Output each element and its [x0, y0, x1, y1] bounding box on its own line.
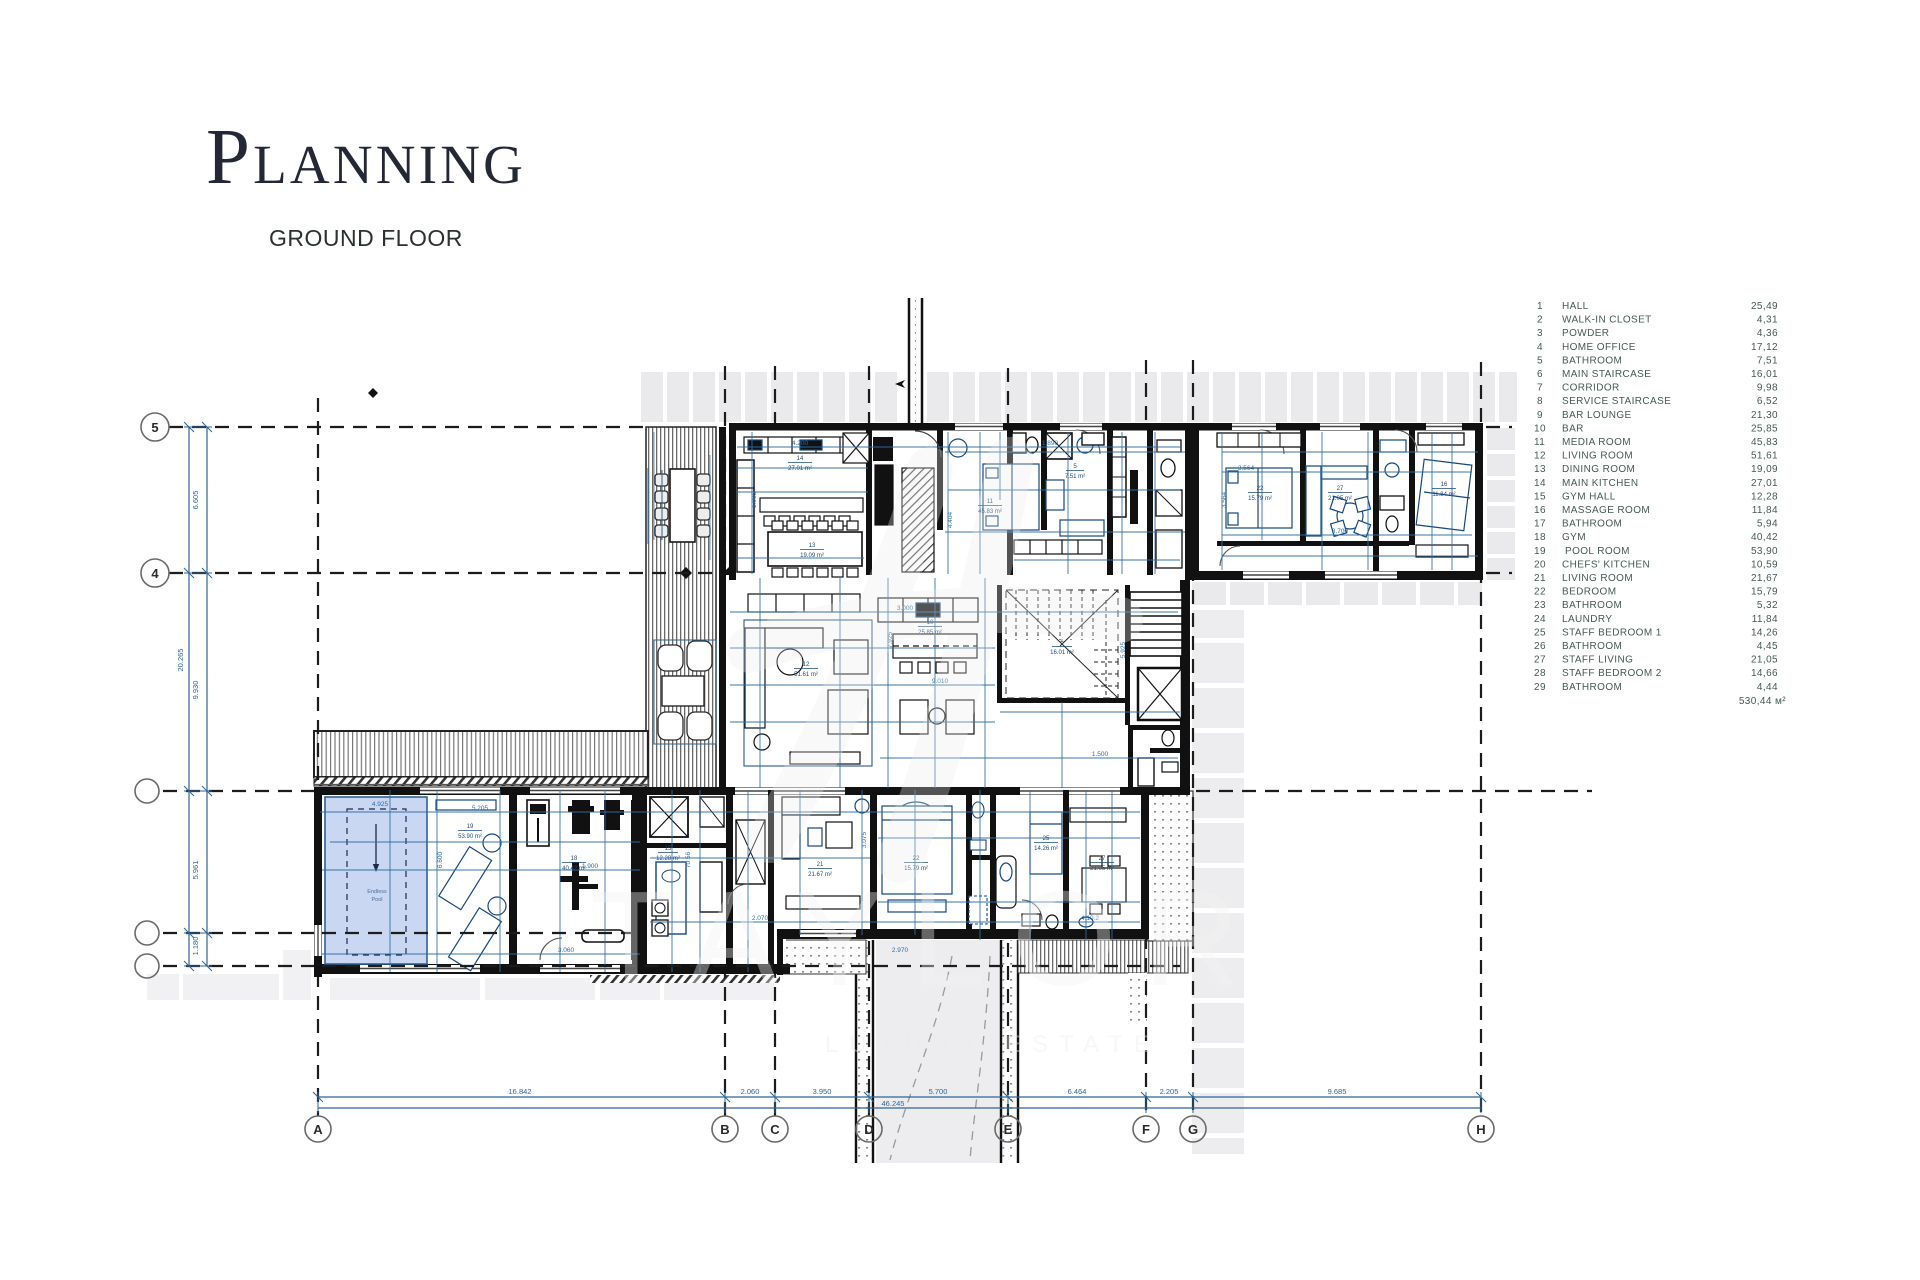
- svg-text:10,59: 10,59: [1751, 559, 1778, 570]
- svg-text:F: F: [1142, 1122, 1150, 1137]
- svg-text:17: 17: [1534, 519, 1546, 530]
- svg-text:25: 25: [1534, 627, 1546, 638]
- svg-text:G: G: [1188, 1122, 1198, 1137]
- svg-text:19: 19: [1534, 546, 1546, 557]
- svg-text:16: 16: [1534, 505, 1546, 516]
- svg-text:22: 22: [1257, 486, 1264, 492]
- svg-text:18: 18: [571, 856, 578, 862]
- svg-text:40,42: 40,42: [1751, 532, 1778, 543]
- svg-text:3.950: 3.950: [813, 1087, 832, 1096]
- svg-text:7.51 m²: 7.51 m²: [1065, 474, 1085, 480]
- svg-text:5.961: 5.961: [191, 861, 200, 880]
- svg-text:4.200: 4.200: [792, 440, 809, 447]
- svg-text:6.605: 6.605: [191, 491, 200, 510]
- svg-text:1.180: 1.180: [191, 937, 200, 956]
- svg-text:1: 1: [1537, 301, 1543, 312]
- svg-text:Pool: Pool: [371, 897, 382, 903]
- svg-text:HOME OFFICE: HOME OFFICE: [1562, 342, 1636, 353]
- svg-text:16.01 m²: 16.01 m²: [1050, 650, 1074, 656]
- svg-text:45,83: 45,83: [1751, 437, 1778, 448]
- svg-text:15,79: 15,79: [1751, 587, 1778, 598]
- svg-text:26: 26: [1534, 641, 1546, 652]
- svg-text:7,51: 7,51: [1757, 355, 1778, 366]
- svg-text:11: 11: [1534, 437, 1545, 448]
- svg-text:3.564: 3.564: [1238, 465, 1255, 472]
- svg-text:BAR: BAR: [1562, 423, 1584, 434]
- svg-text:6.464: 6.464: [1068, 1087, 1087, 1096]
- svg-text:4,45: 4,45: [1757, 641, 1778, 652]
- svg-text:BAR LOUNGE: BAR LOUNGE: [1562, 410, 1632, 421]
- svg-text:15: 15: [665, 846, 672, 852]
- svg-text:1.005: 1.005: [751, 491, 758, 508]
- svg-text:4,36: 4,36: [1757, 328, 1778, 339]
- svg-text:12: 12: [1534, 451, 1546, 462]
- svg-text:16,01: 16,01: [1751, 369, 1778, 380]
- svg-text:13: 13: [809, 543, 816, 549]
- svg-text:9.685: 9.685: [1328, 1087, 1347, 1096]
- svg-text:LAUNDRY: LAUNDRY: [1562, 614, 1612, 625]
- svg-text:27.01 m²: 27.01 m²: [788, 466, 812, 472]
- svg-text:25,49: 25,49: [1751, 301, 1778, 312]
- svg-text:GROUND FLOOR: GROUND FLOOR: [269, 225, 463, 251]
- svg-text:12,28: 12,28: [1751, 491, 1778, 502]
- svg-text:3.700: 3.700: [1332, 528, 1349, 535]
- svg-text:14: 14: [797, 456, 804, 462]
- svg-text:53.90 m²: 53.90 m²: [458, 834, 482, 840]
- svg-text:5: 5: [1537, 355, 1543, 366]
- svg-text:12.28 m²: 12.28 m²: [656, 856, 680, 862]
- svg-text:GYM: GYM: [1562, 532, 1586, 543]
- svg-text:18: 18: [1534, 532, 1546, 543]
- svg-text:CHEFS' KITCHEN: CHEFS' KITCHEN: [1562, 559, 1650, 570]
- svg-text:MAIN STAIRCASE: MAIN STAIRCASE: [1562, 369, 1651, 380]
- svg-text:3.564: 3.564: [1221, 491, 1228, 508]
- svg-text:15: 15: [1534, 491, 1546, 502]
- svg-text:E: E: [1004, 1122, 1013, 1137]
- svg-text:3.075: 3.075: [861, 831, 868, 848]
- svg-text:LUXURY ESTATE: LUXURY ESTATE: [825, 1031, 1161, 1058]
- svg-text:27: 27: [1337, 486, 1344, 492]
- svg-text:4,44: 4,44: [1757, 682, 1778, 693]
- svg-text:12: 12: [803, 662, 810, 668]
- svg-text:19,09: 19,09: [1751, 464, 1778, 475]
- svg-text:H: H: [1476, 1122, 1485, 1137]
- svg-text:2.060: 2.060: [741, 1087, 760, 1096]
- svg-text:16.842: 16.842: [509, 1087, 532, 1096]
- svg-text:BATHROOM: BATHROOM: [1562, 641, 1622, 652]
- svg-text:1.500: 1.500: [1092, 751, 1109, 758]
- svg-text:A: A: [313, 1122, 323, 1137]
- svg-text:CORRIDOR: CORRIDOR: [1562, 383, 1620, 394]
- svg-text:2.205: 2.205: [1160, 1087, 1179, 1096]
- svg-text:24: 24: [1534, 614, 1546, 625]
- svg-text:Endless: Endless: [367, 889, 387, 895]
- svg-text:6.600: 6.600: [437, 851, 444, 868]
- svg-text:STAFF BEDROOM 2: STAFF BEDROOM 2: [1562, 668, 1662, 679]
- svg-text:MAIN KITCHEN: MAIN KITCHEN: [1562, 478, 1638, 489]
- svg-text:B: B: [720, 1122, 729, 1137]
- svg-text:MEDIA ROOM: MEDIA ROOM: [1562, 437, 1631, 448]
- svg-text:5,32: 5,32: [1757, 600, 1778, 611]
- svg-text:14.26 m²: 14.26 m²: [1034, 846, 1058, 852]
- svg-text:25: 25: [1043, 836, 1050, 842]
- svg-text:20.265: 20.265: [176, 649, 185, 672]
- svg-text:16: 16: [1441, 482, 1448, 488]
- svg-text:BATHROOM: BATHROOM: [1562, 600, 1622, 611]
- svg-text:40.42 m²: 40.42 m²: [562, 866, 586, 872]
- svg-text:27,01: 27,01: [1751, 478, 1778, 489]
- svg-text:2: 2: [1537, 315, 1543, 326]
- svg-text:GYM HALL: GYM HALL: [1562, 491, 1616, 502]
- svg-text:51,61: 51,61: [1751, 451, 1778, 462]
- svg-text:8: 8: [1537, 396, 1543, 407]
- svg-text:530,44 м²: 530,44 м²: [1739, 696, 1786, 707]
- svg-text:5.700: 5.700: [929, 1087, 948, 1096]
- svg-text:LIVING ROOM: LIVING ROOM: [1562, 451, 1633, 462]
- svg-text:LIVING ROOM: LIVING ROOM: [1562, 573, 1633, 584]
- svg-text:3: 3: [1537, 328, 1543, 339]
- svg-text:MASSAGE ROOM: MASSAGE ROOM: [1562, 505, 1650, 516]
- svg-text:21,67: 21,67: [1751, 573, 1778, 584]
- svg-text:53,90: 53,90: [1751, 546, 1778, 557]
- svg-text:4,31: 4,31: [1757, 315, 1778, 326]
- svg-text:14: 14: [1534, 478, 1546, 489]
- svg-text:Planning: Planning: [206, 114, 526, 201]
- svg-text:5.205: 5.205: [472, 805, 489, 812]
- svg-text:11,84: 11,84: [1752, 614, 1778, 625]
- svg-text:22: 22: [1534, 587, 1546, 598]
- svg-text:21,05: 21,05: [1751, 655, 1778, 666]
- svg-text:BATHROOM: BATHROOM: [1562, 355, 1622, 366]
- svg-text:STAFF LIVING: STAFF LIVING: [1562, 655, 1633, 666]
- svg-text:BEDROOM: BEDROOM: [1562, 587, 1616, 598]
- svg-text:DINING ROOM: DINING ROOM: [1562, 464, 1635, 475]
- svg-text:14,66: 14,66: [1751, 668, 1778, 679]
- svg-text:3.060: 3.060: [558, 947, 575, 954]
- svg-text:WALK-IN CLOSET: WALK-IN CLOSET: [1562, 315, 1652, 326]
- svg-text:C: C: [770, 1122, 780, 1137]
- svg-text:TAYLOR: TAYLOR: [590, 863, 1266, 1014]
- svg-text:6,52: 6,52: [1757, 396, 1778, 407]
- svg-text:46.245: 46.245: [882, 1099, 905, 1108]
- svg-text:5,94: 5,94: [1757, 519, 1778, 530]
- svg-text:5.925: 5.925: [1120, 641, 1127, 658]
- svg-text:BATHROOM: BATHROOM: [1562, 519, 1622, 530]
- svg-text:28: 28: [1534, 668, 1546, 679]
- svg-text:13: 13: [1534, 464, 1546, 475]
- svg-text:POOL ROOM: POOL ROOM: [1565, 546, 1630, 557]
- svg-text:9.930: 9.930: [191, 681, 200, 700]
- svg-text:1.890: 1.890: [1042, 440, 1059, 447]
- svg-text:25,85: 25,85: [1751, 423, 1778, 434]
- svg-text:21.05 m²: 21.05 m²: [1328, 496, 1352, 502]
- svg-text:STAFF BEDROOM 1: STAFF BEDROOM 1: [1562, 627, 1662, 638]
- svg-text:D: D: [864, 1122, 873, 1137]
- svg-text:4.404: 4.404: [947, 511, 954, 528]
- svg-text:4: 4: [151, 566, 159, 581]
- svg-text:29: 29: [1534, 682, 1546, 693]
- svg-text:11,84: 11,84: [1752, 505, 1778, 516]
- svg-text:11.84 m²: 11.84 m²: [1432, 492, 1455, 498]
- svg-text:7: 7: [1537, 383, 1543, 394]
- svg-text:21,30: 21,30: [1751, 410, 1778, 421]
- svg-text:27: 27: [1099, 856, 1106, 862]
- svg-text:19: 19: [467, 824, 474, 830]
- svg-text:21: 21: [1534, 573, 1546, 584]
- svg-text:HALL: HALL: [1562, 301, 1589, 312]
- svg-text:BATHROOM: BATHROOM: [1562, 682, 1622, 693]
- svg-text:9,98: 9,98: [1757, 383, 1778, 394]
- svg-text:10: 10: [1534, 423, 1546, 434]
- svg-text:POWDER: POWDER: [1562, 328, 1609, 339]
- svg-text:6: 6: [1537, 369, 1543, 380]
- svg-text:23: 23: [1534, 600, 1546, 611]
- svg-text:20: 20: [1534, 559, 1546, 570]
- svg-text:14,26: 14,26: [1751, 627, 1778, 638]
- svg-text:4.925: 4.925: [372, 801, 389, 808]
- svg-text:17,12: 17,12: [1751, 342, 1778, 353]
- svg-text:27: 27: [1534, 655, 1546, 666]
- svg-text:15.79 m²: 15.79 m²: [1248, 496, 1272, 502]
- svg-text:19.09 m²: 19.09 m²: [800, 553, 824, 559]
- svg-text:51.61 m²: 51.61 m²: [794, 672, 818, 678]
- svg-text:SERVICE STAIRCASE: SERVICE STAIRCASE: [1562, 396, 1671, 407]
- svg-text:9: 9: [1537, 410, 1543, 421]
- svg-text:4: 4: [1537, 342, 1543, 353]
- svg-text:5: 5: [151, 420, 158, 435]
